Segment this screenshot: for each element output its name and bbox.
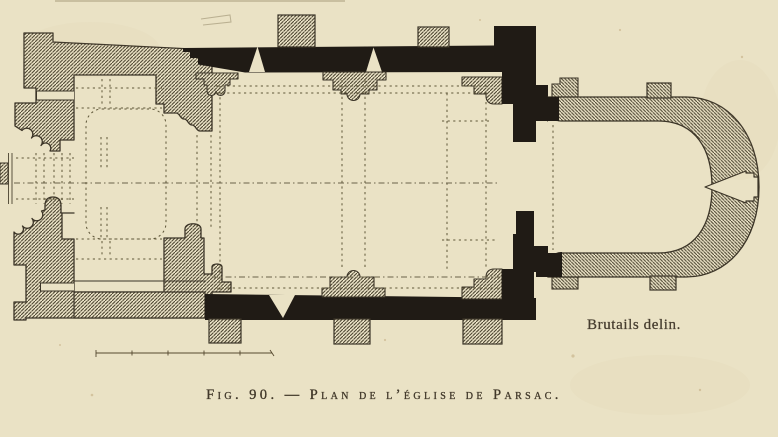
svg-text:Fig. 90. — Plan de l’église de: Fig. 90. — Plan de l’église de Parsac.	[206, 387, 562, 403]
svg-text:Brutails delin.: Brutails delin.	[587, 317, 681, 333]
